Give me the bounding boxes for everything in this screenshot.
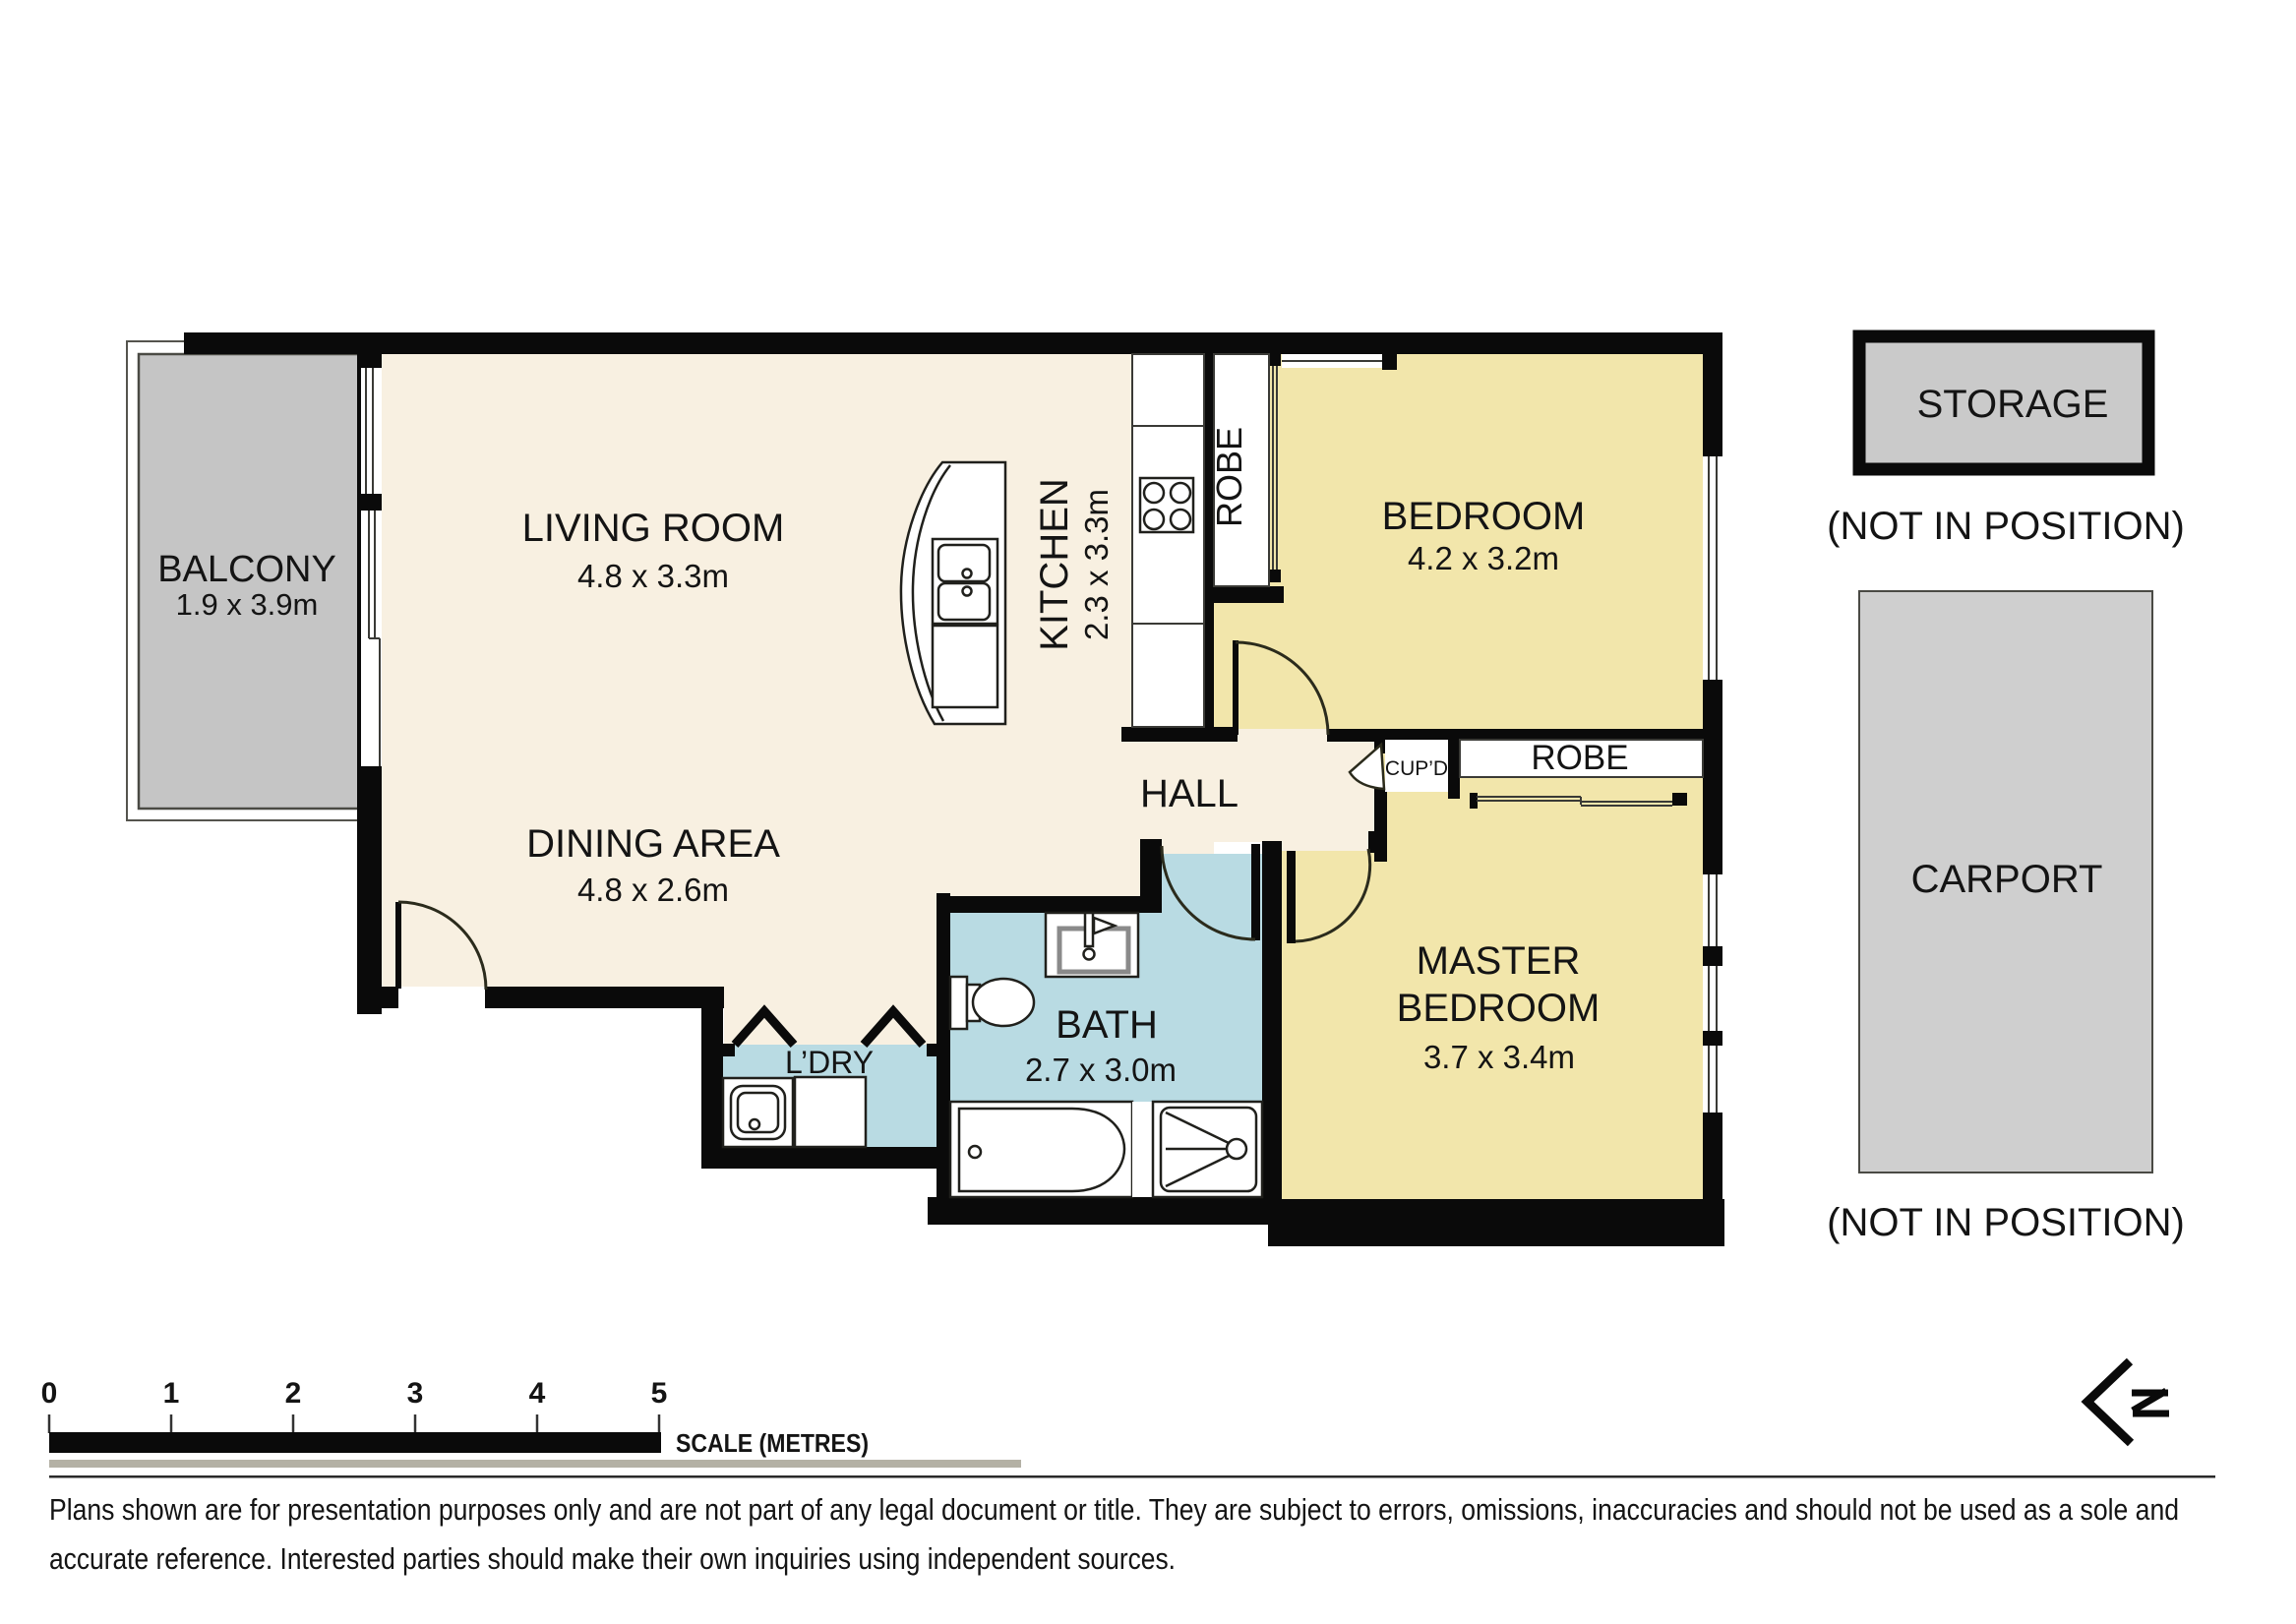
svg-text:3.7 x 3.4m: 3.7 x 3.4m <box>1423 1039 1575 1075</box>
svg-text:accurate reference. Interested: accurate reference. Interested parties s… <box>49 1541 1176 1576</box>
svg-text:2.7 x 3.0m: 2.7 x 3.0m <box>1025 1052 1177 1088</box>
svg-text:LIVING ROOM: LIVING ROOM <box>522 507 785 550</box>
svg-text:CARPORT: CARPORT <box>1911 858 2103 901</box>
svg-text:2: 2 <box>285 1377 302 1410</box>
svg-text:HALL: HALL <box>1140 772 1239 815</box>
svg-text:MASTER: MASTER <box>1417 939 1581 983</box>
svg-text:KITCHEN: KITCHEN <box>1033 478 1076 651</box>
svg-text:4: 4 <box>529 1377 546 1410</box>
svg-text:3: 3 <box>407 1377 424 1410</box>
svg-text:(NOT IN POSITION): (NOT IN POSITION) <box>1827 1201 2185 1244</box>
svg-text:STORAGE: STORAGE <box>1917 383 2109 426</box>
svg-text:Plans shown are for presentati: Plans shown are for presentation purpose… <box>49 1492 2179 1527</box>
svg-text:2.3 x 3.3m: 2.3 x 3.3m <box>1078 489 1115 640</box>
svg-text:4.2 x 3.2m: 4.2 x 3.2m <box>1408 540 1559 576</box>
svg-text:DINING AREA: DINING AREA <box>526 822 780 866</box>
svg-text:4.8 x 3.3m: 4.8 x 3.3m <box>577 558 729 594</box>
svg-text:5: 5 <box>651 1377 668 1410</box>
svg-text:CUP’D: CUP’D <box>1385 757 1448 780</box>
svg-text:BATH: BATH <box>1056 1003 1158 1047</box>
svg-text:BEDROOM: BEDROOM <box>1397 987 1601 1030</box>
svg-text:1: 1 <box>163 1377 180 1410</box>
svg-text:(NOT IN POSITION): (NOT IN POSITION) <box>1827 505 2185 548</box>
svg-text:BEDROOM: BEDROOM <box>1382 495 1586 538</box>
svg-text:L’DRY: L’DRY <box>785 1045 874 1080</box>
svg-text:SCALE (METRES): SCALE (METRES) <box>676 1428 869 1458</box>
svg-text:1.9 x 3.9m: 1.9 x 3.9m <box>176 587 319 622</box>
svg-text:BALCONY: BALCONY <box>157 549 336 590</box>
svg-text:ROBE: ROBE <box>1209 427 1249 527</box>
svg-text:4.8 x 2.6m: 4.8 x 2.6m <box>577 872 729 908</box>
svg-text:0: 0 <box>41 1377 58 1410</box>
svg-text:ROBE: ROBE <box>1531 739 1628 777</box>
